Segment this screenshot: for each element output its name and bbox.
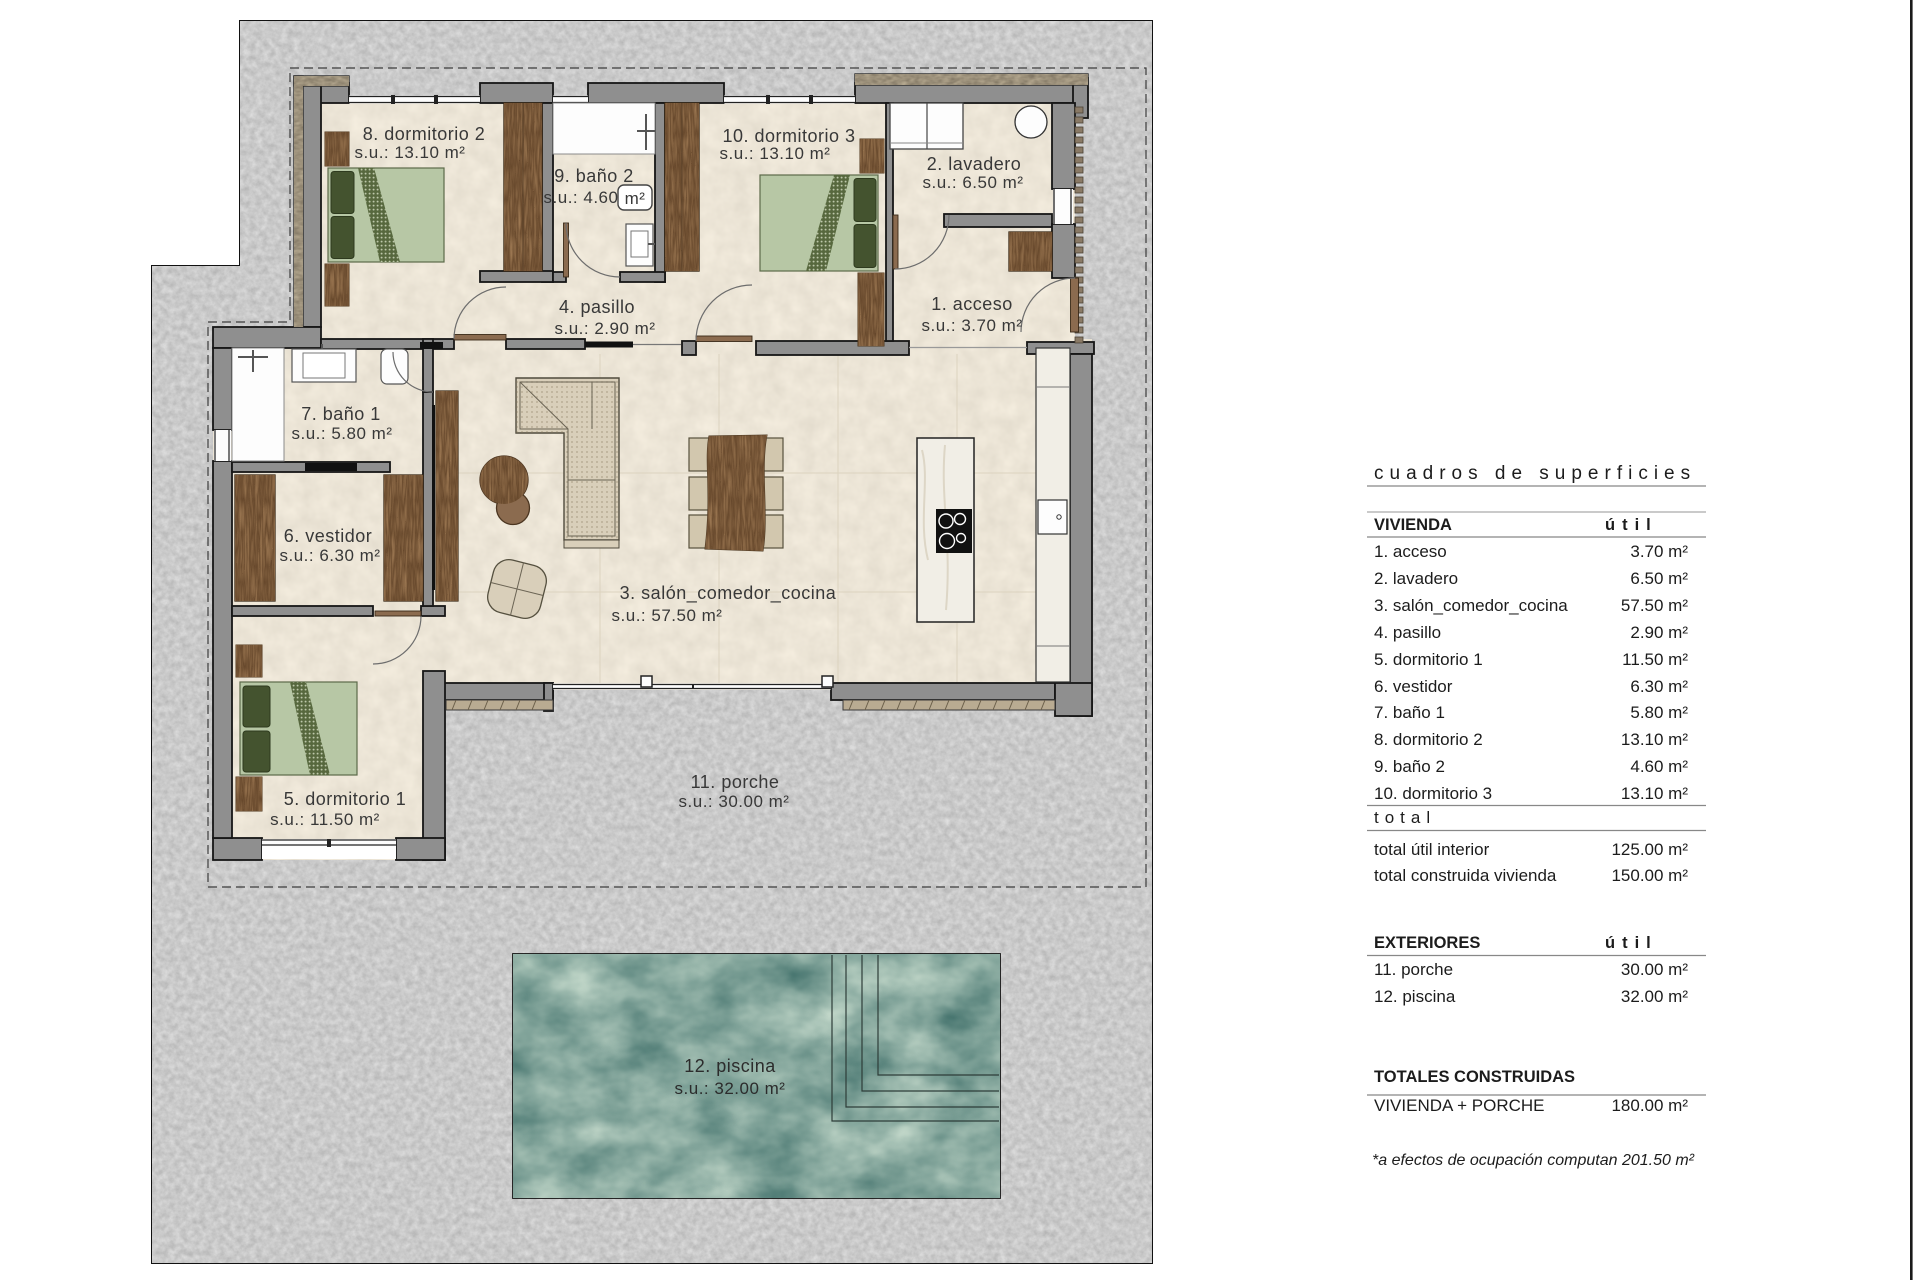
svg-text:*a efectos de ocupación comput: *a efectos de ocupación computan 201.50 …	[1372, 1152, 1695, 1169]
svg-text:180.00 m²: 180.00 m²	[1611, 1096, 1688, 1115]
svg-text:s.u.: 2.90 m²: s.u.: 2.90 m²	[555, 319, 656, 338]
svg-text:s.u.: 30.00 m²: s.u.: 30.00 m²	[679, 792, 790, 811]
svg-text:6.50 m²: 6.50 m²	[1630, 569, 1688, 588]
svg-text:125.00 m²: 125.00 m²	[1611, 840, 1688, 859]
svg-text:11. porche: 11. porche	[1374, 960, 1453, 979]
svg-text:8. dormitorio 2: 8. dormitorio 2	[363, 124, 486, 144]
svg-text:9. baño 2: 9. baño 2	[554, 166, 634, 186]
svg-text:útil: útil	[1605, 934, 1658, 952]
svg-text:2. lavadero: 2. lavadero	[927, 154, 1022, 174]
svg-text:VIVIENDA + PORCHE: VIVIENDA + PORCHE	[1374, 1096, 1545, 1115]
svg-text:s.u.: 11.50 m²: s.u.: 11.50 m²	[270, 810, 380, 829]
svg-text:10. dormitorio 3: 10. dormitorio 3	[722, 126, 855, 146]
svg-text:total construida vivienda: total construida vivienda	[1374, 866, 1557, 885]
svg-text:32.00 m²: 32.00 m²	[1621, 987, 1688, 1006]
svg-text:11.50 m²: 11.50 m²	[1622, 650, 1688, 669]
svg-text:1. acceso: 1. acceso	[1374, 542, 1447, 561]
svg-text:s.u.: 13.10 m²: s.u.: 13.10 m²	[720, 144, 831, 163]
svg-text:6. vestidor: 6. vestidor	[284, 526, 373, 546]
svg-text:2. lavadero: 2. lavadero	[1374, 569, 1458, 588]
svg-text:3. salón_comedor_cocina: 3. salón_comedor_cocina	[1374, 596, 1568, 615]
svg-text:s.u.: 3.70 m²: s.u.: 3.70 m²	[922, 316, 1023, 335]
svg-text:7. baño 1: 7. baño 1	[301, 404, 381, 424]
svg-text:s.u.: 6.30 m²: s.u.: 6.30 m²	[280, 546, 381, 565]
svg-text:s.u.: 4.60: s.u.: 4.60	[544, 188, 619, 207]
svg-text:EXTERIORES: EXTERIORES	[1374, 934, 1480, 952]
svg-text:total: total	[1374, 808, 1436, 827]
svg-text:13.10 m²: 13.10 m²	[1621, 730, 1688, 749]
svg-text:5. dormitorio 1: 5. dormitorio 1	[1374, 650, 1483, 669]
svg-text:s.u.: 32.00 m²: s.u.: 32.00 m²	[675, 1079, 786, 1098]
svg-text:150.00 m²: 150.00 m²	[1611, 866, 1688, 885]
svg-text:12. piscina: 12. piscina	[684, 1056, 776, 1076]
svg-text:útil: útil	[1605, 516, 1658, 534]
svg-text:9. baño 2: 9. baño 2	[1374, 757, 1445, 776]
svg-text:s.u.: 57.50 m²: s.u.: 57.50 m²	[612, 606, 723, 625]
svg-text:4. pasillo: 4. pasillo	[1374, 623, 1441, 642]
svg-text:cuadros de superficies: cuadros de superficies	[1374, 463, 1696, 484]
svg-text:total útil interior: total útil interior	[1374, 840, 1490, 859]
svg-text:10. dormitorio 3: 10. dormitorio 3	[1374, 784, 1492, 803]
svg-text:s.u.: 6.50 m²: s.u.: 6.50 m²	[923, 173, 1024, 192]
svg-text:4.60 m²: 4.60 m²	[1630, 757, 1688, 776]
svg-text:5. dormitorio 1: 5. dormitorio 1	[284, 789, 407, 809]
svg-text:13.10 m²: 13.10 m²	[1621, 784, 1688, 803]
svg-text:7. baño 1: 7. baño 1	[1374, 703, 1445, 722]
svg-text:VIVIENDA: VIVIENDA	[1374, 516, 1452, 534]
svg-text:8. dormitorio 2: 8. dormitorio 2	[1374, 730, 1483, 749]
svg-text:1. acceso: 1. acceso	[931, 294, 1013, 314]
svg-text:3.70 m²: 3.70 m²	[1630, 542, 1688, 561]
svg-text:s.u.: 13.10 m²: s.u.: 13.10 m²	[355, 143, 466, 162]
svg-text:6.30 m²: 6.30 m²	[1630, 677, 1688, 696]
svg-text:5.80 m²: 5.80 m²	[1630, 703, 1688, 722]
svg-text:2.90 m²: 2.90 m²	[1630, 623, 1688, 642]
svg-text:12. piscina: 12. piscina	[1374, 987, 1456, 1006]
svg-text:4. pasillo: 4. pasillo	[559, 297, 635, 317]
svg-text:6. vestidor: 6. vestidor	[1374, 677, 1453, 696]
svg-text:TOTALES CONSTRUIDAS: TOTALES CONSTRUIDAS	[1374, 1068, 1575, 1086]
svg-text:30.00 m²: 30.00 m²	[1621, 960, 1688, 979]
svg-text:11. porche: 11. porche	[691, 772, 780, 792]
svg-text:m²: m²	[625, 189, 646, 208]
svg-text:57.50 m²: 57.50 m²	[1621, 596, 1688, 615]
svg-text:s.u.: 5.80 m²: s.u.: 5.80 m²	[292, 424, 393, 443]
svg-text:3. salón_comedor_cocina: 3. salón_comedor_cocina	[620, 583, 837, 604]
